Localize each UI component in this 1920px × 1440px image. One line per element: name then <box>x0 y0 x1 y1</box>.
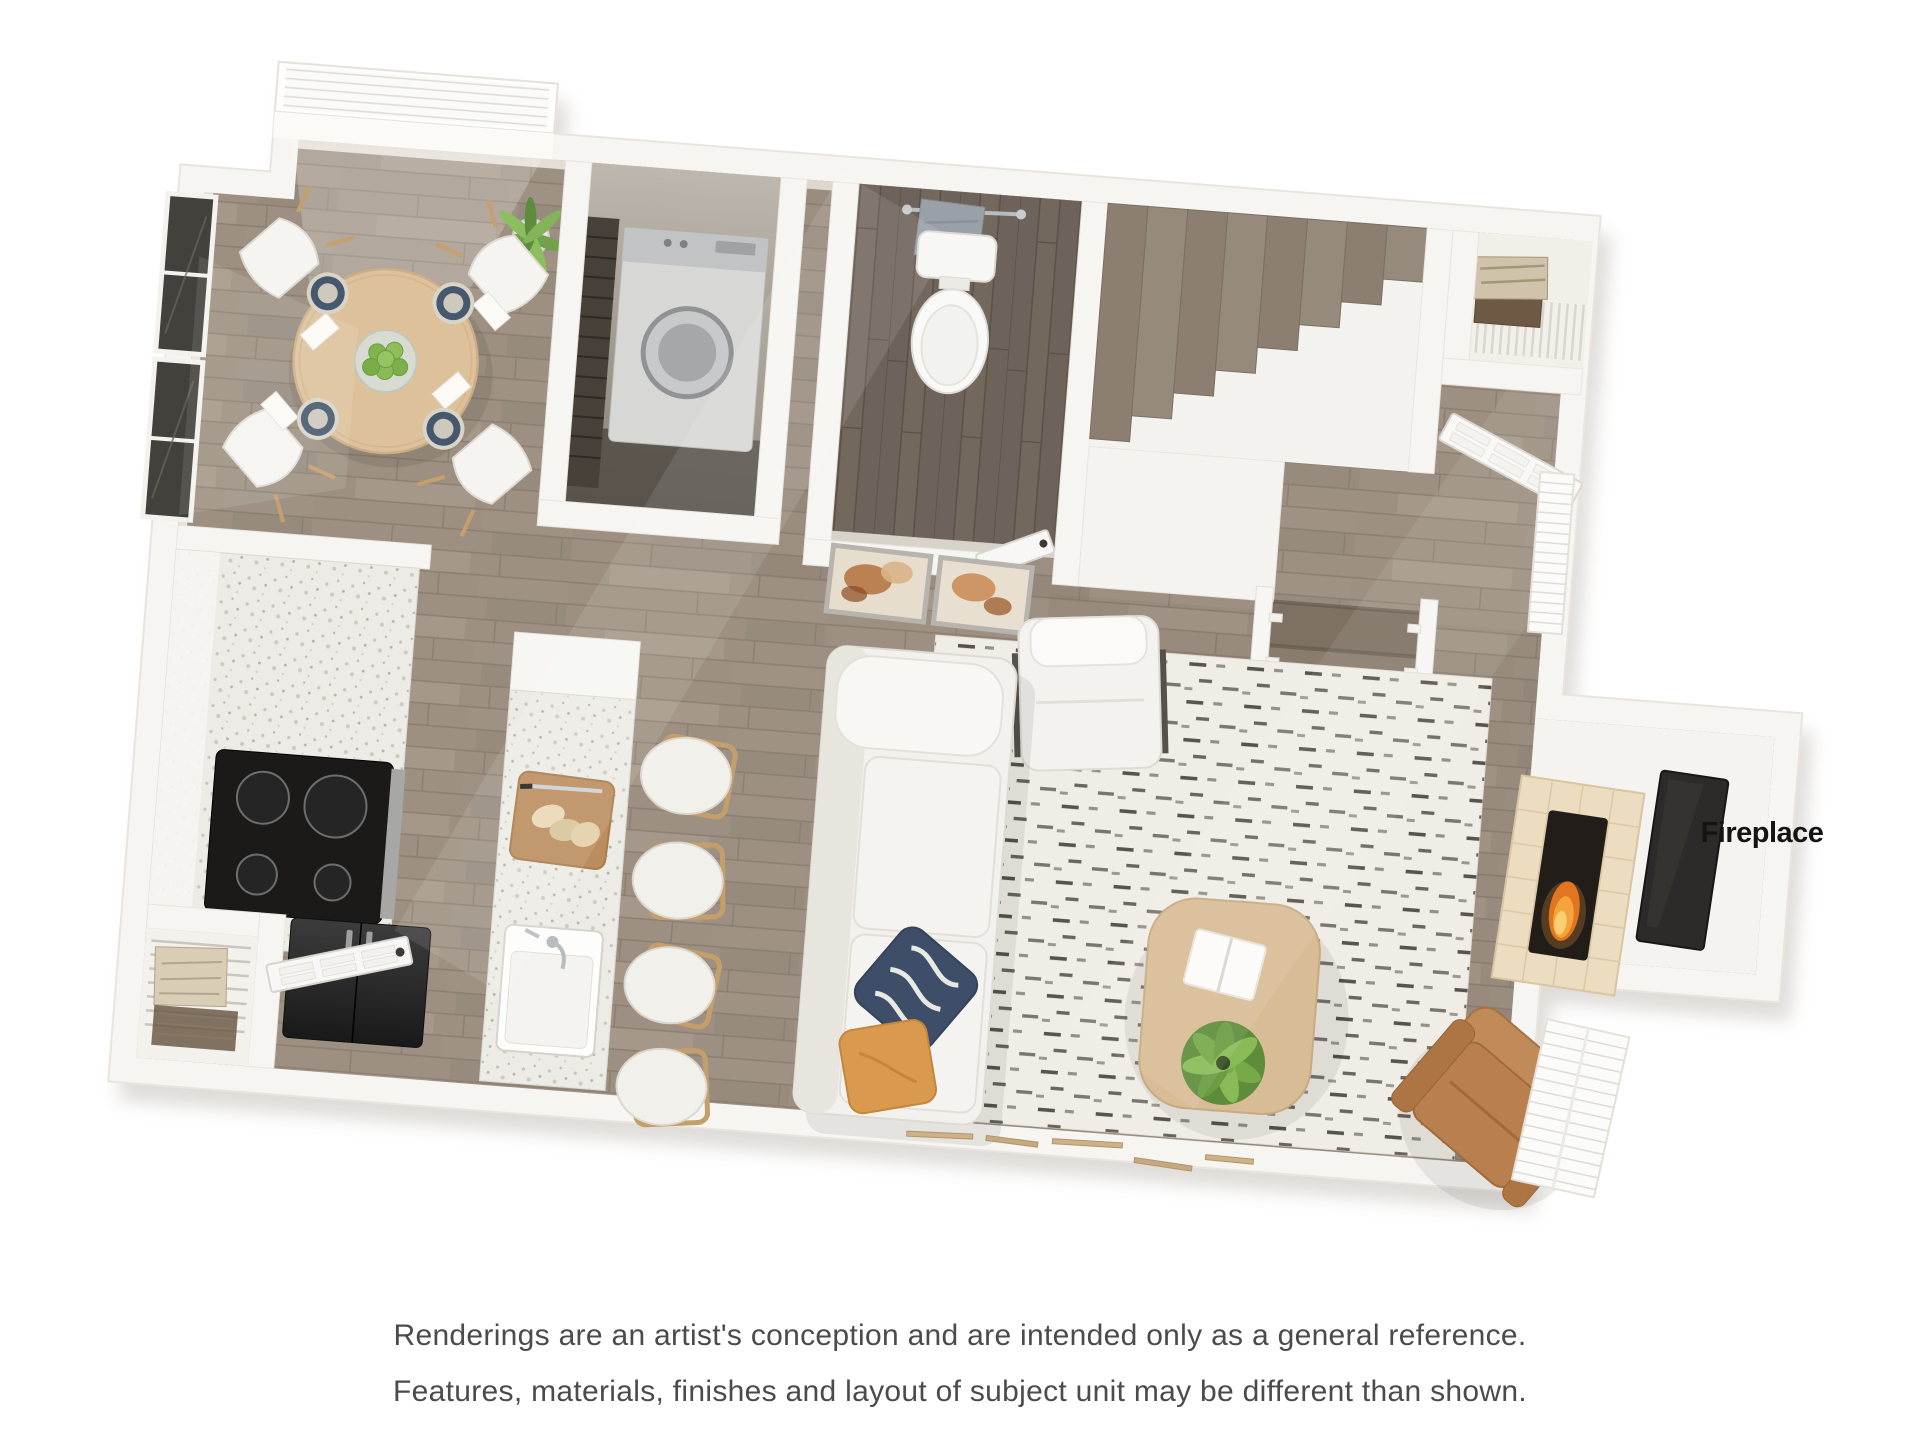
floorplan-body <box>94 54 1856 1268</box>
floorplan-rendering: Fireplace <box>0 0 1920 1440</box>
pantry-closet <box>136 904 286 1068</box>
disclaimer: Renderings are an artist's conception an… <box>0 1308 1920 1420</box>
lounge-chair <box>1014 615 1166 771</box>
sectional-sofa <box>790 645 1038 1148</box>
entry-closet <box>1441 230 1593 395</box>
disclaimer-line-1: Renderings are an artist's conception an… <box>0 1308 1920 1364</box>
staircase-upper-flight <box>1089 203 1427 471</box>
stairwell-wall <box>1078 447 1284 602</box>
cooktop <box>204 749 406 925</box>
sofa-headrest <box>833 654 1006 759</box>
floorplan-page: Fireplace Renderings are an artist's con… <box>0 0 1920 1440</box>
fireplace-label: Fireplace <box>1701 817 1824 849</box>
folded-blanket <box>154 947 227 1007</box>
folded-towels <box>1473 257 1547 300</box>
orange-pillow <box>837 1018 938 1115</box>
disclaimer-line-2: Features, materials, finishes and layout… <box>0 1364 1920 1420</box>
